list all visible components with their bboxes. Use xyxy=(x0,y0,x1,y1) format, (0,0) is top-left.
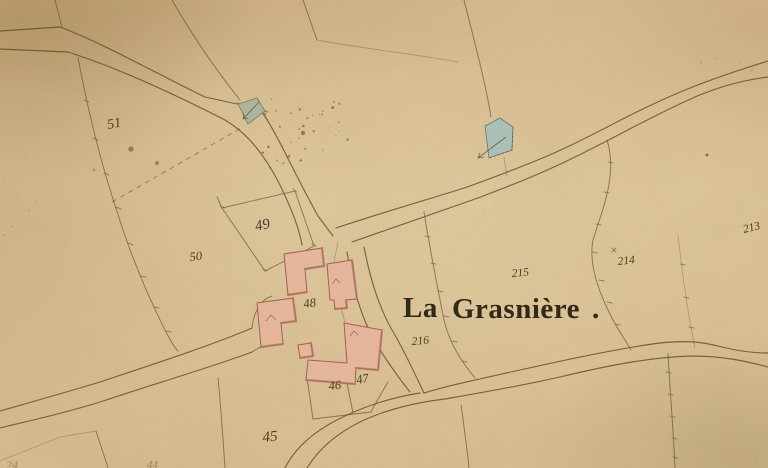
parcel-label-44-clipped: 44 xyxy=(147,459,159,468)
parcel-label-46: 46 xyxy=(328,378,343,393)
paper-mottle xyxy=(0,0,768,468)
hamlet-title: La Grasnière . xyxy=(403,292,600,325)
parcel-label-216: 216 xyxy=(411,335,429,348)
parcel-label-24-clipped: 24 xyxy=(6,458,18,468)
parcel-label-45: 45 xyxy=(262,428,279,446)
title-dot: . xyxy=(592,293,600,325)
parcel-label-51: 51 xyxy=(106,116,122,133)
parcel-label-214: 214 xyxy=(617,254,636,268)
map-drawing: 51 50 49 48 46 47 45 216 215 214 213 24 … xyxy=(0,0,768,468)
cadastral-map-canvas[interactable]: 51 50 49 48 46 47 45 216 215 214 213 24 … xyxy=(0,0,768,468)
parcel-label-50: 50 xyxy=(189,249,204,264)
parcel-label-215: 215 xyxy=(511,267,529,280)
